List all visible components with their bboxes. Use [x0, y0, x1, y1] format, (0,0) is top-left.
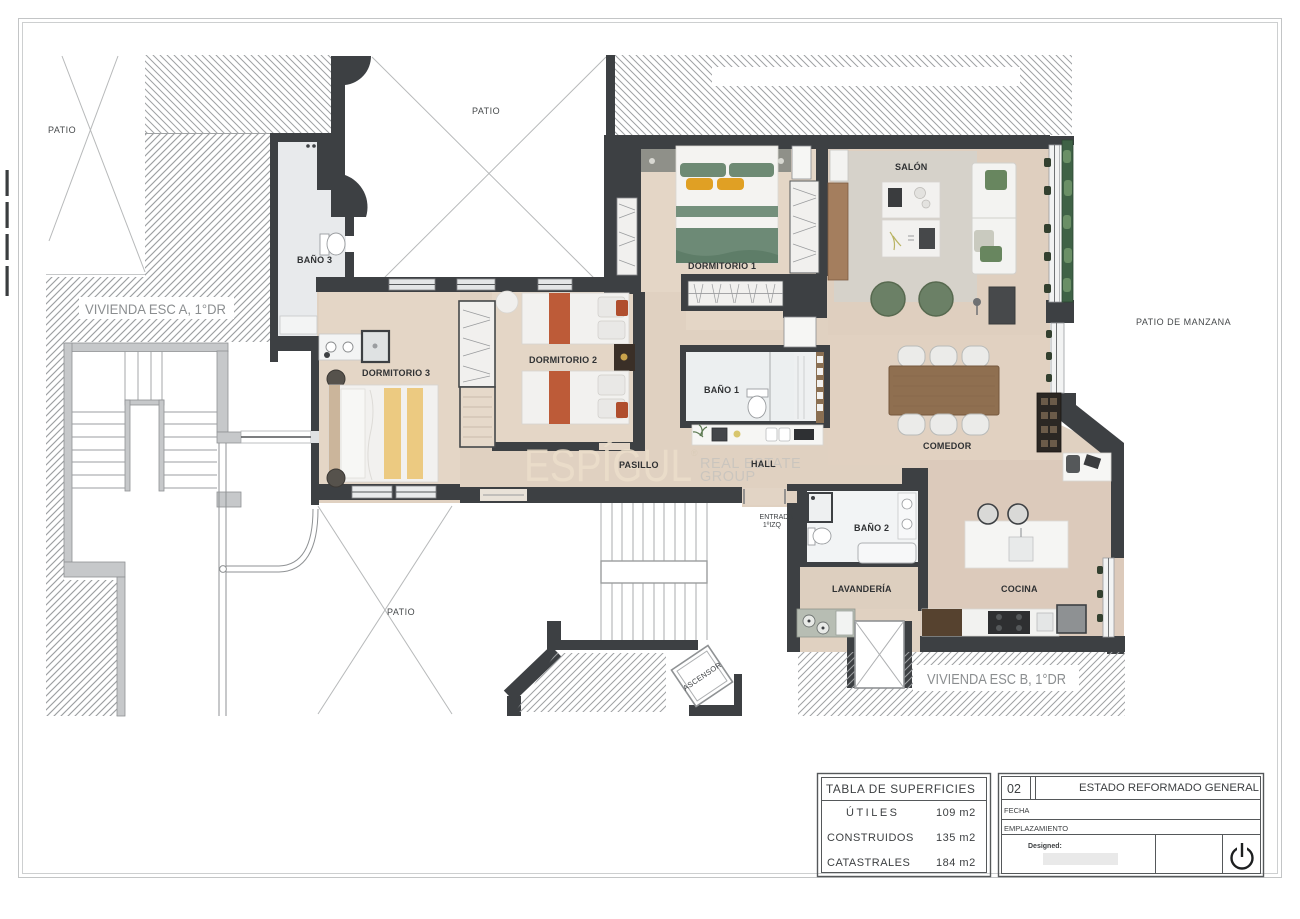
- svg-text:ESTADO REFORMADO GENERAL: ESTADO REFORMADO GENERAL: [1079, 782, 1259, 794]
- svg-text:DORMITORIO 3: DORMITORIO 3: [362, 368, 430, 378]
- svg-text:ENTRADA: ENTRADA: [760, 514, 794, 521]
- svg-text:ESPÍGUL: ESPÍGUL: [524, 440, 692, 491]
- svg-text:135 m2: 135 m2: [936, 832, 976, 844]
- svg-text:BAÑO 1: BAÑO 1: [704, 385, 739, 395]
- svg-text:FECHA: FECHA: [1004, 806, 1029, 815]
- svg-text:BAÑO 2: BAÑO 2: [854, 523, 889, 533]
- svg-text:SALÓN: SALÓN: [895, 161, 928, 172]
- svg-text:184 m2: 184 m2: [936, 857, 976, 869]
- svg-text:DORMITORIO 1: DORMITORIO 1: [688, 261, 756, 271]
- svg-text:HALL: HALL: [751, 459, 776, 469]
- svg-text:®: ®: [691, 448, 698, 458]
- svg-text:PATIO: PATIO: [472, 106, 500, 116]
- svg-text:PATIO: PATIO: [48, 125, 76, 135]
- svg-text:GROUP: GROUP: [700, 469, 756, 485]
- svg-text:DORMITORIO 2: DORMITORIO 2: [529, 355, 597, 365]
- svg-text:109 m2: 109 m2: [936, 807, 976, 819]
- svg-text:1ºIZQ: 1ºIZQ: [763, 522, 782, 529]
- svg-text:PASILLO: PASILLO: [619, 460, 659, 470]
- svg-text:VIVIENDA ESC A, 1°DR: VIVIENDA ESC A, 1°DR: [85, 301, 226, 317]
- svg-text:CONSTRUIDOS: CONSTRUIDOS: [827, 832, 914, 844]
- svg-text:ÚTILES: ÚTILES: [846, 806, 900, 819]
- svg-text:Designed:: Designed:: [1028, 843, 1062, 850]
- svg-text:EMPLAZAMIENTO: EMPLAZAMIENTO: [1004, 824, 1068, 833]
- svg-text:02: 02: [1007, 782, 1021, 796]
- svg-text:COCINA: COCINA: [1001, 584, 1038, 594]
- svg-text:COMEDOR: COMEDOR: [923, 441, 972, 451]
- svg-text:BAÑO 3: BAÑO 3: [297, 255, 332, 265]
- svg-text:CATASTRALES: CATASTRALES: [827, 857, 910, 869]
- svg-text:LAVANDERÍA: LAVANDERÍA: [832, 584, 892, 594]
- svg-text:PATIO: PATIO: [387, 607, 415, 617]
- svg-text:VIVIENDA ESC B, 1°DR: VIVIENDA ESC B, 1°DR: [927, 671, 1066, 688]
- svg-text:TABLA DE SUPERFICIES: TABLA DE SUPERFICIES: [826, 782, 975, 796]
- svg-text:PATIO DE MANZANA: PATIO DE MANZANA: [1136, 317, 1231, 327]
